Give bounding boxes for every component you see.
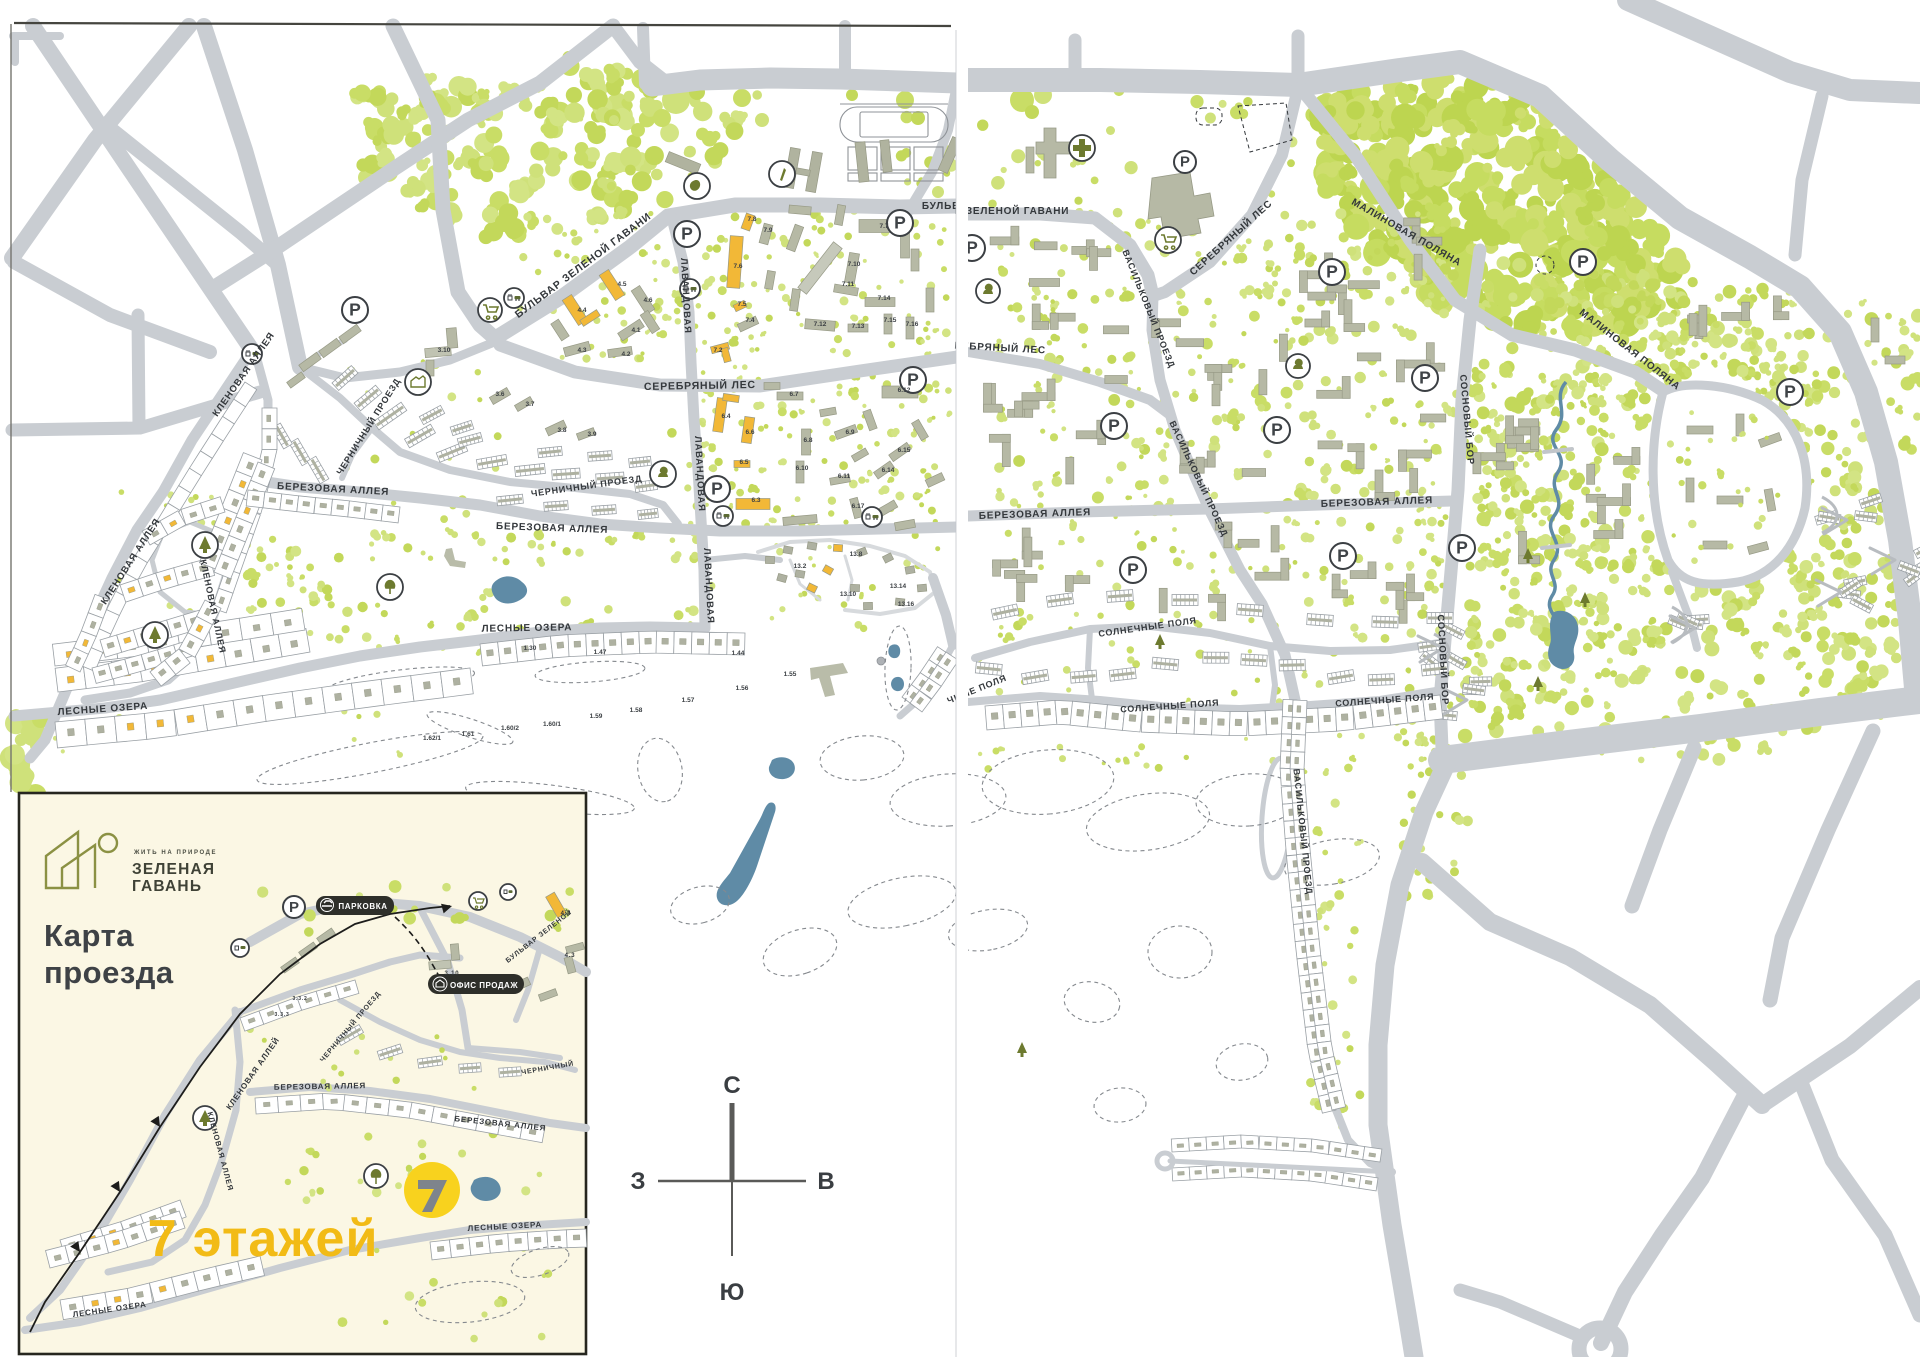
svg-text:7.14: 7.14	[878, 295, 891, 302]
svg-text:1.58: 1.58	[630, 707, 643, 714]
svg-text:6.7: 6.7	[789, 391, 798, 398]
svg-text:P: P	[349, 300, 361, 320]
svg-text:P: P	[1784, 382, 1796, 402]
svg-text:1.30: 1.30	[524, 645, 537, 652]
svg-text:7.12: 7.12	[814, 321, 827, 328]
svg-text:P: P	[1577, 252, 1589, 272]
svg-text:1.47: 1.47	[594, 649, 607, 656]
svg-text:6.17: 6.17	[852, 503, 865, 510]
svg-text:P: P	[1419, 368, 1431, 388]
svg-text:4.2: 4.2	[621, 351, 630, 358]
svg-text:4.3: 4.3	[577, 347, 586, 354]
svg-text:7.10: 7.10	[848, 261, 861, 268]
svg-text:6.12: 6.12	[898, 387, 911, 394]
svg-text:1.60/1: 1.60/1	[543, 721, 561, 728]
svg-text:7.7: 7.7	[879, 223, 888, 230]
svg-text:7.5: 7.5	[737, 301, 746, 308]
svg-text:1.62/1: 1.62/1	[423, 735, 441, 742]
svg-text:6.3: 6.3	[751, 497, 760, 504]
svg-text:P: P	[711, 479, 723, 499]
svg-text:P: P	[1127, 560, 1139, 580]
svg-text:13.8: 13.8	[850, 551, 863, 558]
svg-text:3.9: 3.9	[587, 431, 596, 438]
svg-text:P: P	[1456, 538, 1468, 558]
svg-text:ЖИТЬ НА ПРИРОДЕ: ЖИТЬ НА ПРИРОДЕ	[133, 850, 217, 856]
svg-text:1.56: 1.56	[736, 685, 749, 692]
svg-text:P: P	[1108, 416, 1120, 436]
svg-text:13.2: 13.2	[794, 563, 807, 570]
svg-text:4.4: 4.4	[577, 307, 586, 314]
svg-text:7.16: 7.16	[906, 321, 919, 328]
svg-text:7.6: 7.6	[733, 263, 742, 270]
svg-text:6.9: 6.9	[845, 429, 854, 436]
svg-text:7.9: 7.9	[763, 227, 772, 234]
svg-text:6.14: 6.14	[882, 467, 895, 474]
svg-text:P: P	[894, 213, 906, 233]
svg-text:7.4: 7.4	[745, 317, 754, 324]
svg-text:1.44: 1.44	[732, 650, 745, 657]
svg-text:6.15: 6.15	[898, 447, 911, 454]
svg-text:Р ЗЕЛЕНОЙ ГАВАНИ: Р ЗЕЛЕНОЙ ГАВАНИ	[955, 204, 1069, 217]
svg-text:7.8: 7.8	[747, 216, 756, 223]
svg-text:4.5: 4.5	[617, 281, 626, 288]
svg-text:P: P	[1180, 155, 1190, 171]
svg-text:P: P	[1271, 420, 1283, 440]
svg-text:P: P	[681, 224, 693, 244]
svg-text:ЛЕСНЫЕ ОЗЕРА: ЛЕСНЫЕ ОЗЕРА	[482, 622, 573, 635]
svg-text:13.10: 13.10	[840, 591, 857, 598]
svg-text:4.1: 4.1	[631, 327, 640, 334]
svg-text:1.61: 1.61	[462, 731, 475, 738]
svg-text:7.2: 7.2	[713, 347, 722, 354]
svg-text:7.11: 7.11	[842, 281, 855, 288]
svg-text:6.8: 6.8	[803, 437, 812, 444]
svg-text:3.10: 3.10	[438, 347, 451, 354]
svg-text:1.59: 1.59	[590, 713, 603, 720]
svg-text:7.15: 7.15	[884, 317, 897, 324]
svg-text:проезда: проезда	[44, 955, 174, 990]
svg-text:6.11: 6.11	[838, 473, 851, 480]
svg-text:P: P	[1326, 262, 1338, 282]
svg-text:1.55: 1.55	[784, 671, 797, 678]
svg-text:СЕРЕБРЯНЫЙ ЛЕС: СЕРЕБРЯНЫЙ ЛЕС	[644, 378, 756, 393]
svg-text:1.60/2: 1.60/2	[501, 725, 519, 732]
svg-text:Карта: Карта	[44, 918, 134, 953]
svg-text:6.6: 6.6	[745, 429, 754, 436]
svg-text:7.13: 7.13	[852, 323, 865, 330]
svg-text:1.57: 1.57	[682, 697, 695, 704]
svg-text:ГАВАНЬ: ГАВАНЬ	[132, 878, 202, 895]
svg-text:6.4: 6.4	[721, 413, 730, 420]
svg-text:4.6: 4.6	[643, 297, 652, 304]
svg-text:6.10: 6.10	[796, 465, 809, 472]
svg-text:P: P	[1337, 546, 1349, 566]
svg-text:ЗЕЛЕНАЯ: ЗЕЛЕНАЯ	[132, 861, 215, 878]
svg-text:3.8: 3.8	[557, 427, 566, 434]
svg-text:3.7: 3.7	[525, 401, 534, 408]
svg-text:3.6: 3.6	[495, 391, 504, 398]
svg-text:13.14: 13.14	[890, 583, 907, 590]
svg-text:13.16: 13.16	[898, 601, 915, 608]
svg-text:6.5: 6.5	[739, 459, 748, 466]
